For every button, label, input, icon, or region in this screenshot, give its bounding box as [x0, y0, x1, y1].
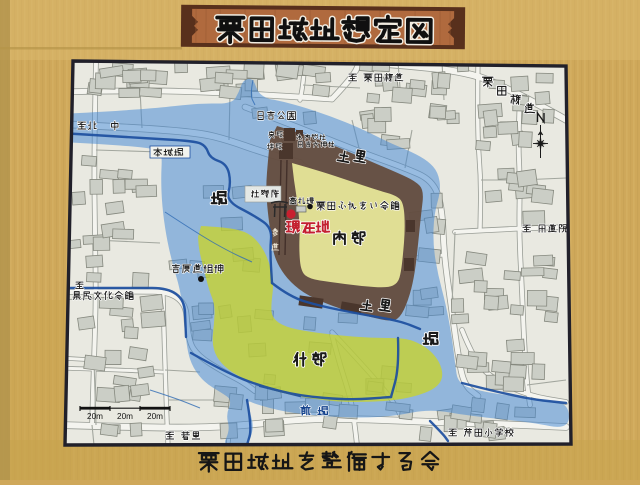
svg-text:20m: 20m	[117, 412, 133, 421]
svg-text:20m: 20m	[87, 412, 103, 421]
svg-text:20m: 20m	[147, 412, 163, 421]
